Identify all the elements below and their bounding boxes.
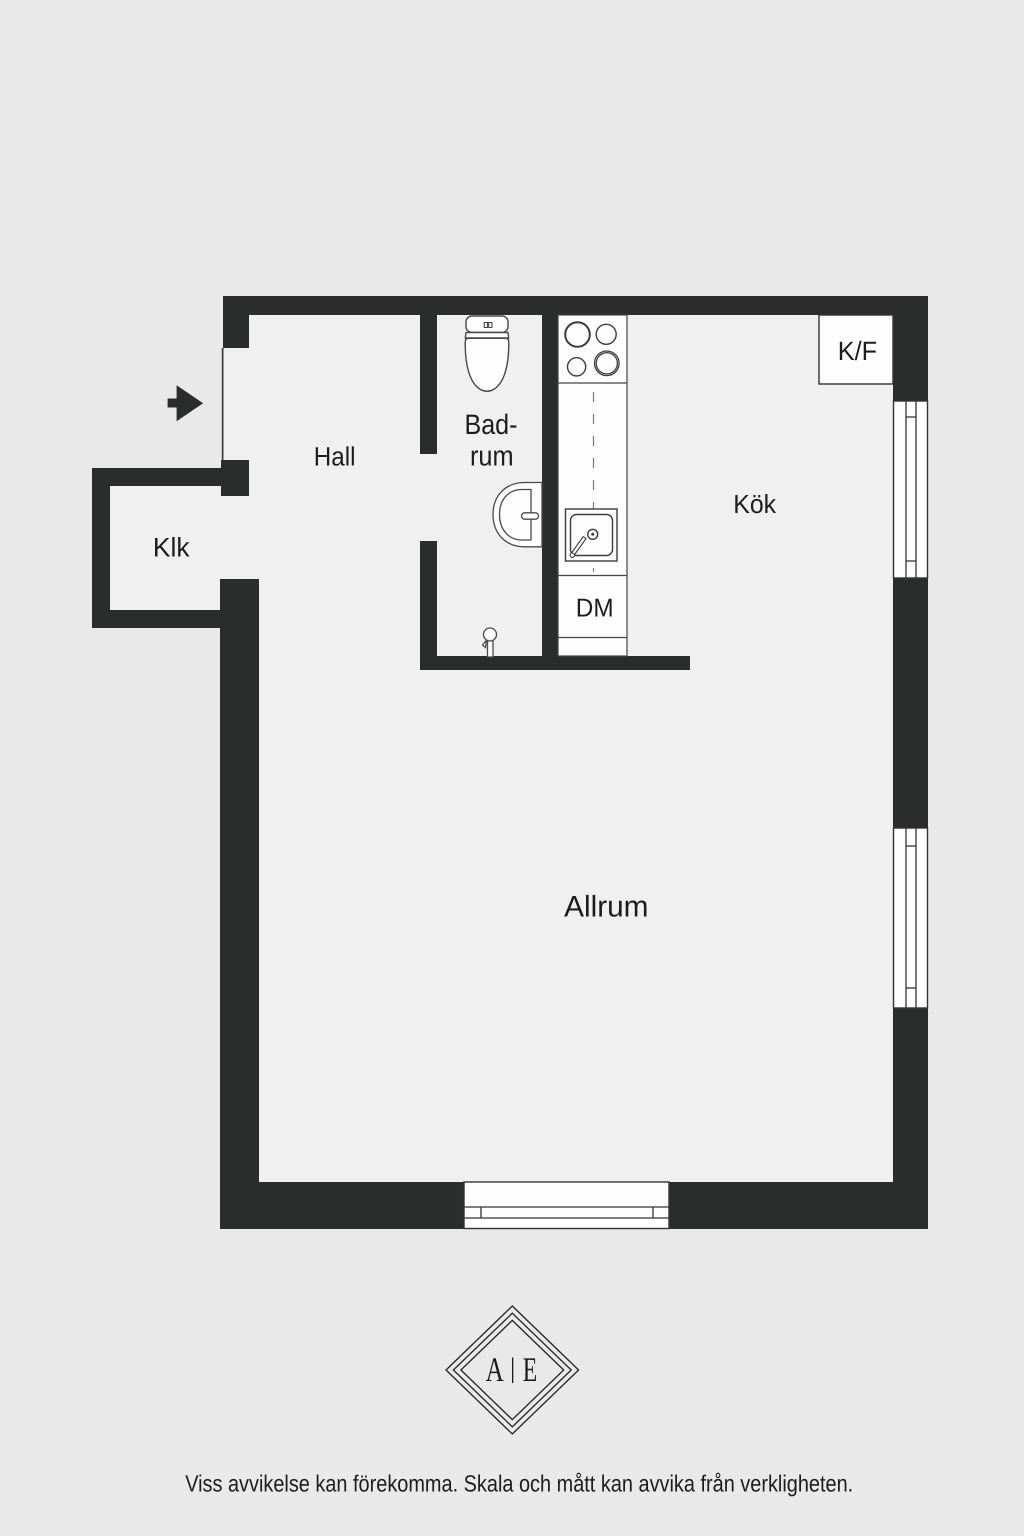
svg-text:E: E xyxy=(523,1351,538,1389)
svg-text:Allrum: Allrum xyxy=(564,890,648,923)
svg-text:Hall: Hall xyxy=(314,442,356,472)
svg-text:DM: DM xyxy=(576,594,614,622)
svg-text:K/F: K/F xyxy=(838,336,877,366)
svg-text:Klk: Klk xyxy=(153,533,190,563)
svg-text:A: A xyxy=(486,1351,504,1389)
svg-text:Kök: Kök xyxy=(733,489,777,519)
svg-text:Bad-: Bad- xyxy=(465,408,518,440)
svg-text:Viss avvikelse kan förekomma.: Viss avvikelse kan förekomma. Skala och … xyxy=(185,1471,853,1497)
svg-text:rum: rum xyxy=(470,439,514,471)
